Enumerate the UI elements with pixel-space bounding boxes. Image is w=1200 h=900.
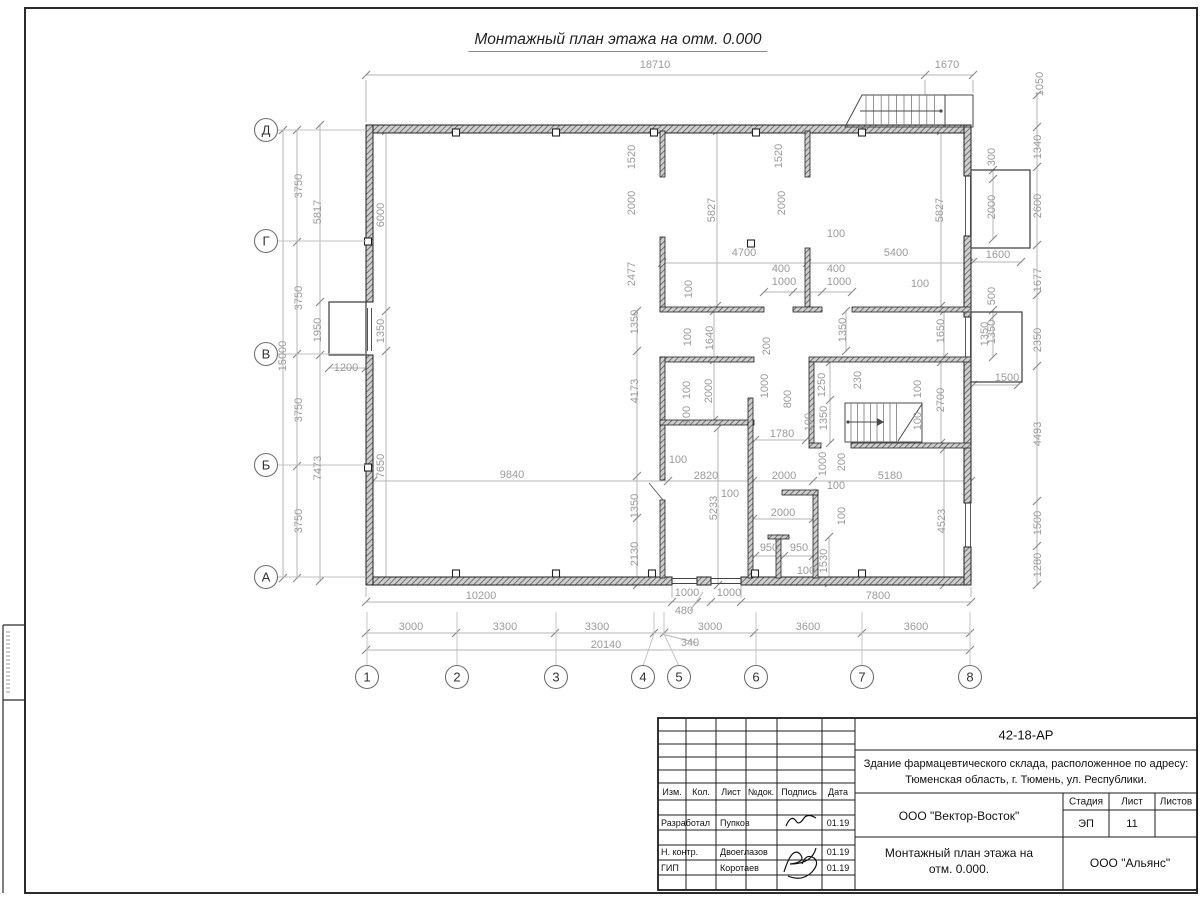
dim-label: 1340 bbox=[1032, 135, 1044, 159]
dim-label: 500 bbox=[986, 287, 998, 305]
dim-label: 1050 bbox=[1034, 72, 1046, 96]
dim-label: 5817 bbox=[312, 200, 324, 224]
dim-label: 2700 bbox=[935, 388, 947, 412]
dim-label: 480 bbox=[675, 605, 693, 617]
dim-label: 3000 bbox=[399, 621, 423, 633]
dim-label: 7473 bbox=[312, 456, 324, 480]
plan-title: Монтажный план этажа на отм. 0.000 bbox=[468, 31, 767, 52]
dim-label: 100 bbox=[827, 480, 845, 492]
row-developer-role: Разработал bbox=[661, 818, 710, 828]
dim-label: 3750 bbox=[293, 509, 305, 533]
dim-label: 100 bbox=[681, 381, 693, 399]
stage-label: Стадия bbox=[1069, 797, 1103, 808]
walls bbox=[365, 125, 972, 585]
dim-label: 1600 bbox=[986, 249, 1010, 261]
dim-label: 3750 bbox=[293, 398, 305, 422]
axis-col-5: 5 bbox=[675, 670, 682, 685]
dim-label: 950 bbox=[760, 542, 778, 554]
dim-label: 1500 bbox=[1032, 511, 1044, 535]
dim-label: 5827 bbox=[706, 198, 718, 222]
dim-label: 1350 bbox=[818, 406, 830, 430]
dim-label: 1350 bbox=[375, 319, 387, 343]
dim-label: 4493 bbox=[1032, 422, 1044, 446]
sheet-title-line1: Монтажный план этажа на bbox=[885, 846, 1033, 860]
dim-label: 3600 bbox=[904, 621, 928, 633]
dim-label: 15000 bbox=[277, 341, 289, 372]
row-ncontrol-role: Н. контр. bbox=[661, 847, 698, 857]
dim-label: 7650 bbox=[375, 454, 387, 478]
axis-col-4: 4 bbox=[639, 670, 646, 685]
dim-label: 400 bbox=[827, 263, 845, 275]
dim-label: 1000 bbox=[675, 587, 699, 599]
dim-label: 340 bbox=[681, 637, 699, 649]
axis-row-Д: Д bbox=[262, 123, 271, 138]
dim-label: 2477 bbox=[626, 262, 638, 286]
dim-label: 100 bbox=[683, 280, 695, 298]
designer-org: ООО "Вектор-Восток" bbox=[899, 809, 1020, 823]
project-name-line1: Здание фармацевтического склада, располо… bbox=[864, 758, 1189, 770]
dim-label: 1200 bbox=[334, 362, 358, 374]
dim-label: 1950 bbox=[312, 318, 324, 342]
sheet-label: Лист bbox=[1121, 797, 1143, 808]
row-developer-date: 01.19 bbox=[827, 818, 850, 828]
row-ncontrol-date: 01.19 bbox=[827, 847, 850, 857]
dim-label: 3600 bbox=[796, 621, 820, 633]
dim-label: 3000 bbox=[698, 621, 722, 633]
client-org: ООО "Альянс" bbox=[1090, 856, 1170, 870]
axis-col-7: 7 bbox=[858, 670, 865, 685]
dim-label: 2820 bbox=[694, 470, 718, 482]
col-kol: Кол. bbox=[692, 787, 710, 797]
dim-label: 10200 bbox=[466, 590, 497, 602]
axis-col-3: 3 bbox=[552, 670, 559, 685]
dim-label: 2000 bbox=[772, 470, 796, 482]
dim-label: 2000 bbox=[626, 191, 638, 215]
dim-label: 1280 bbox=[1032, 553, 1044, 577]
row-developer-name: Пупков bbox=[720, 818, 750, 828]
col-list: Лист bbox=[721, 787, 741, 797]
doc-number: 42-18-АР bbox=[999, 728, 1054, 743]
axis-col-6: 6 bbox=[752, 670, 759, 685]
dim-label: 1350 bbox=[629, 494, 641, 518]
dim-label: 3300 bbox=[493, 621, 517, 633]
dim-label: 2600 bbox=[1032, 194, 1044, 218]
dim-label: 5233 bbox=[708, 496, 720, 520]
axis-col-2: 2 bbox=[453, 670, 460, 685]
dim-label: 1350 bbox=[837, 318, 849, 342]
dim-label: 1250 bbox=[816, 373, 828, 397]
dim-label: 100 bbox=[827, 228, 845, 240]
dim-label: 5180 bbox=[878, 470, 902, 482]
row-gip-role: ГИП bbox=[661, 863, 679, 873]
dim-label: 2000 bbox=[986, 195, 998, 219]
axis-row-Г: Г bbox=[262, 234, 269, 249]
dim-label: 100 bbox=[803, 413, 815, 431]
dim-label: 5827 bbox=[934, 198, 946, 222]
dim-label: 400 bbox=[772, 263, 790, 275]
dim-label: 230 bbox=[852, 371, 864, 389]
dim-label: 2130 bbox=[629, 542, 641, 566]
axis-row-А: А bbox=[262, 570, 271, 585]
dim-label: 100 bbox=[682, 328, 694, 346]
dim-label: 1650 bbox=[935, 319, 947, 343]
dim-label: 1530 bbox=[818, 549, 830, 573]
col-data: Дата bbox=[828, 787, 848, 797]
dim-label: 1000 bbox=[759, 374, 771, 398]
dim-label: 100 bbox=[911, 278, 929, 290]
dim-label: 2000 bbox=[771, 507, 795, 519]
row-gip-name: Коротаев bbox=[720, 863, 759, 873]
dim-label: 2000 bbox=[776, 191, 788, 215]
dim-label: 1677 bbox=[1032, 268, 1044, 292]
axis-row-Б: Б bbox=[262, 458, 271, 473]
stage-value: ЭП bbox=[1078, 818, 1094, 830]
project-name-line2: Тюменская область, г. Тюмень, ул. Респуб… bbox=[905, 774, 1147, 786]
dim-label: 6000 bbox=[375, 203, 387, 227]
dim-label: 100 bbox=[797, 565, 815, 577]
axis-row-В: В bbox=[262, 347, 271, 362]
dim-label: 2350 bbox=[1032, 328, 1044, 352]
dim-label: 1670 bbox=[935, 59, 959, 71]
dim-label: 1520 bbox=[626, 145, 638, 169]
exterior-stair-icon bbox=[845, 95, 973, 127]
dim-label: 1000 bbox=[817, 452, 829, 476]
sheet-number: 11 bbox=[1126, 818, 1137, 830]
axis-col-1: 1 bbox=[363, 670, 370, 685]
dim-label: 4173 bbox=[629, 379, 641, 403]
dim-label: 1640 bbox=[704, 326, 716, 350]
col-izm: Изм. bbox=[662, 787, 681, 797]
dim-label: 1520 bbox=[773, 144, 785, 168]
dim-label: 20140 bbox=[591, 639, 622, 651]
sheets-label: Листов bbox=[1160, 797, 1193, 808]
drawing-sheet: ДГВБА12345678 18710167010503750375037503… bbox=[0, 0, 1200, 900]
dim-label: 1000 bbox=[827, 276, 851, 288]
sheet-title-line2: отм. 0.000. bbox=[929, 862, 989, 876]
dim-label: 100 bbox=[836, 507, 848, 525]
interior-stair-icon bbox=[845, 403, 922, 442]
dim-label: 3300 bbox=[585, 621, 609, 633]
dim-label: 2000 bbox=[703, 379, 715, 403]
dim-label: 1350 bbox=[629, 310, 641, 334]
dim-label: 1000 bbox=[772, 276, 796, 288]
dim-label: 1350 bbox=[979, 322, 991, 346]
dim-label: 100 bbox=[721, 488, 739, 500]
row-ncontrol-name: Двоеглазов bbox=[720, 847, 768, 857]
dim-label: 950 bbox=[790, 542, 808, 554]
col-podpis: Подпись bbox=[781, 787, 817, 797]
dim-label: 100 bbox=[912, 412, 924, 430]
dim-label: 3750 bbox=[293, 286, 305, 310]
dim-label: 300 bbox=[986, 148, 998, 166]
dim-label: 5400 bbox=[884, 247, 908, 259]
dim-label: 18710 bbox=[640, 59, 671, 71]
dim-label: 4523 bbox=[936, 509, 948, 533]
dim-label: 100 bbox=[681, 406, 693, 424]
dim-label: 4700 bbox=[732, 247, 756, 259]
dim-label: 7800 bbox=[866, 590, 890, 602]
dim-label: 100 bbox=[912, 380, 924, 398]
dim-label: 200 bbox=[761, 337, 773, 355]
dim-label: 3750 bbox=[293, 174, 305, 198]
dim-label: 200 bbox=[836, 453, 848, 471]
row-gip-date: 01.19 bbox=[827, 863, 850, 873]
dim-label: 800 bbox=[782, 390, 794, 408]
dim-label: 1780 bbox=[770, 428, 794, 440]
dim-label: 1000 bbox=[717, 587, 741, 599]
col-dok: №док. bbox=[748, 787, 774, 797]
dim-label: 1500 bbox=[995, 372, 1019, 384]
stairs-and-details bbox=[329, 95, 1030, 584]
dim-label: 100 bbox=[669, 454, 687, 466]
dim-label: 9840 bbox=[500, 469, 524, 481]
axis-col-8: 8 bbox=[966, 670, 973, 685]
